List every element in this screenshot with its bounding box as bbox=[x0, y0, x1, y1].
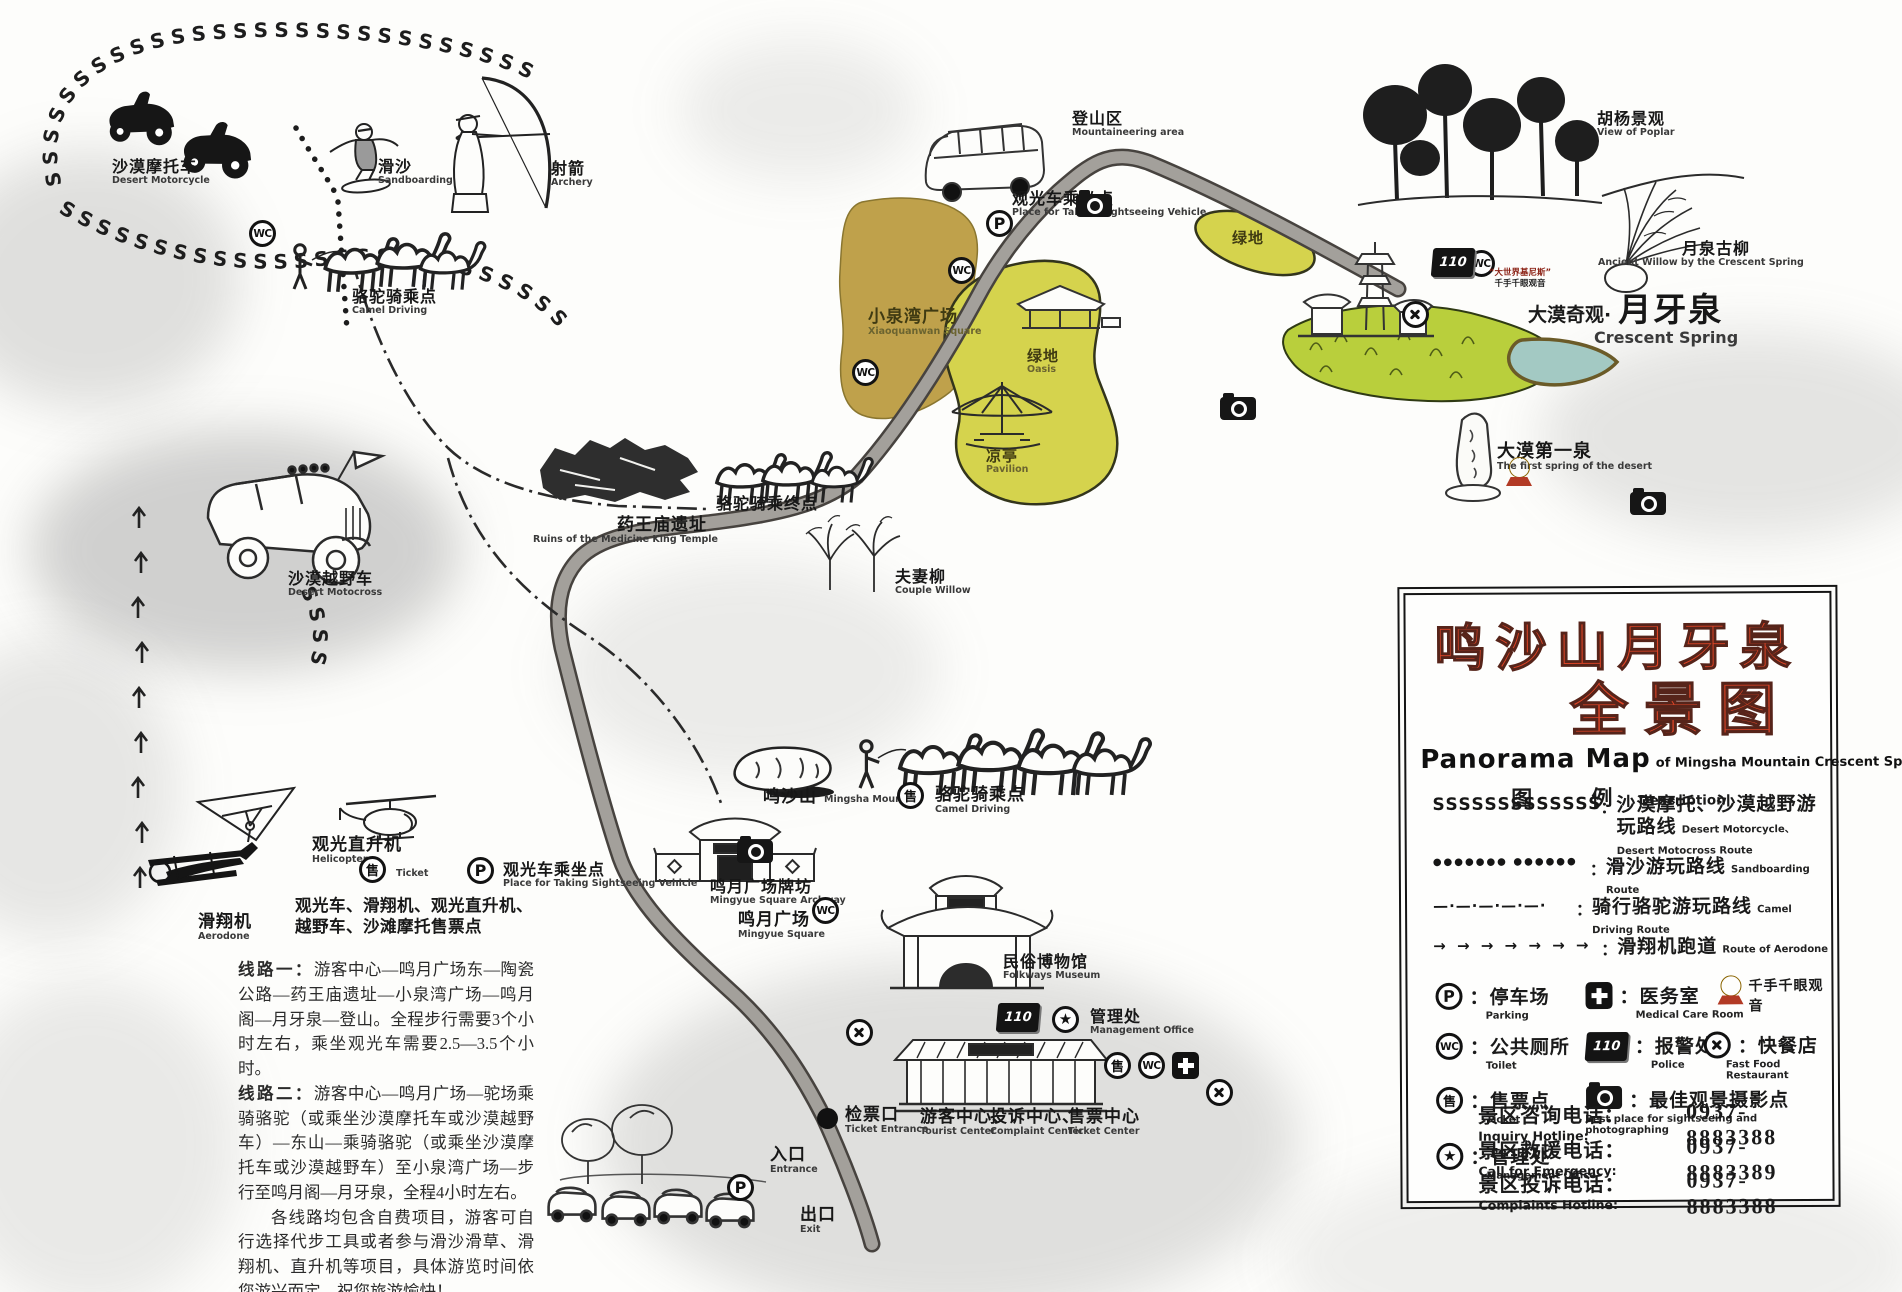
medical-icon bbox=[1585, 982, 1612, 1009]
poi-desert-motocross: 沙漠越野车Desert Motocross bbox=[288, 570, 382, 599]
wc-icon: WC bbox=[852, 359, 879, 386]
ancient-willow bbox=[1605, 182, 1706, 292]
camera-icon bbox=[737, 840, 773, 863]
fast-food-icon bbox=[1402, 301, 1429, 328]
guanyin-caption: “大世界基尼斯”千手千眼观音 bbox=[1478, 268, 1562, 289]
camera-icon bbox=[1630, 492, 1666, 515]
poi-folkways-museum: 民俗博物馆Folkways Museum bbox=[1003, 953, 1100, 982]
poi-sightseeing-vehicle-stop-mid: 观光车乘坐点Place for Taking Sightseeing Vehic… bbox=[503, 861, 697, 890]
poi-camel-driving-yard: 骆驼骑乘点Camel Driving bbox=[935, 786, 1025, 816]
poi-pavilion: 凉亭Pavilion bbox=[986, 448, 1028, 475]
route-tips-text: 各线路均包含自费项目，游客可自行选择代步工具或者参与滑沙滑草、滑翔机、直升机等项… bbox=[238, 1206, 534, 1292]
hang-glider-sketch bbox=[198, 788, 294, 842]
hotline-row-3: 景区投诉电话： 0937-8883388 Complaints Hotline: bbox=[1478, 1168, 1625, 1213]
legend-panel: 鸣沙山月牙泉 全景图 Panorama Map of Mingsha Mount… bbox=[1403, 591, 1834, 1203]
medicine-temple-rocks bbox=[540, 438, 698, 502]
parking-trees-sketch bbox=[562, 1105, 672, 1184]
wc-icon: WC bbox=[1138, 1052, 1165, 1079]
panel-title-zh2: 全景图 bbox=[1406, 679, 1792, 741]
management-star-icon: ★ bbox=[1436, 1143, 1463, 1170]
route-notes: 线路一：游客中心—鸣月广场东—陶瓷公路—药王庙遗址—小泉湾广场—鸣月阁—月牙泉—… bbox=[238, 958, 534, 1292]
poi-helicopter: 观光直升机Helicopter bbox=[312, 836, 402, 866]
parking-icon: P bbox=[727, 1174, 754, 1201]
poi-desert-motorcycle: 沙漠摩托车Desert Motorcycle bbox=[112, 158, 210, 187]
ticket-icon: 售 bbox=[897, 782, 924, 809]
poi-sandboarding: 滑沙Sandboarding bbox=[378, 158, 453, 187]
jeep-sketch bbox=[208, 452, 382, 583]
panel-title-zh: 鸣沙山月牙泉 bbox=[1405, 605, 1829, 681]
svg-text:SSSSSSSSSSSSSSSSSSSSSSSSSS: SSSSSSSSSSSSSSSSSSSSSSSSSS bbox=[55, 196, 577, 337]
poi-mingyue-square: 鸣月广场Mingyue Square bbox=[738, 911, 825, 941]
poi-exit: 出口Exit bbox=[800, 1206, 836, 1236]
aerodone-runway-arrows bbox=[132, 508, 148, 888]
wc-icon: WC bbox=[948, 257, 975, 284]
poi-mountaineering-area: 登山区Mountaineering area bbox=[1072, 110, 1184, 139]
poi-aerodone: 滑翔机Aerodone bbox=[198, 913, 252, 943]
ticket-icon: 售 bbox=[359, 856, 386, 883]
ticket-office-note-line2: 越野车、沙滩摩托售票点 bbox=[295, 913, 482, 937]
ticket-entrance-dot bbox=[817, 1108, 838, 1129]
route-2-text: 线路二：游客中心—鸣月广场—驼场乘骑骆驼（或乘坐沙漠摩托车或沙漠越野车）—东山—… bbox=[238, 1082, 534, 1206]
police-110-icon: 110 bbox=[1431, 248, 1476, 277]
route-1-text: 线路一：游客中心—鸣月广场东—陶瓷公路—药王庙遗址—小泉湾广场—鸣月阁—月牙泉—… bbox=[238, 958, 534, 1082]
sandboarding-route bbox=[296, 128, 347, 330]
camera-icon bbox=[1076, 194, 1112, 217]
poi-archery: 射箭Archery bbox=[551, 160, 593, 189]
ticket-icon: 售 bbox=[1436, 1087, 1463, 1114]
legend-fastfood: ：快餐店 Fast Food Restaurant bbox=[1704, 1031, 1832, 1082]
poi-entrance: 入口Entrance bbox=[770, 1146, 818, 1176]
poi-couple-willow: 夫妻柳Couple Willow bbox=[895, 568, 971, 597]
poplar-grove bbox=[1358, 64, 1744, 205]
legend-route-camel: —·—·—·—·—·： 骑行骆驼游玩路线 Camel Driving Route bbox=[1433, 895, 1831, 938]
parking-icon: P bbox=[467, 857, 494, 884]
management-star-icon: ★ bbox=[1052, 1006, 1079, 1033]
panorama-map-poster: { "map": { "pois": [ {"zh":"沙漠摩托车","en":… bbox=[0, 0, 1902, 1292]
police-110-icon: 110 bbox=[996, 1003, 1041, 1032]
guanyin-icon bbox=[1719, 975, 1741, 1005]
fast-food-icon bbox=[846, 1019, 873, 1046]
panel-title-en: Panorama Map of Mingsha Mountain Crescen… bbox=[1420, 743, 1830, 775]
poi-camel-driving-start: 骆驼骑乘点Camel Driving bbox=[352, 288, 437, 317]
poi-management-office: 管理处Management Office bbox=[1090, 1008, 1194, 1037]
police-110-icon: 110 bbox=[1585, 1032, 1629, 1061]
wc-icon: WC bbox=[1436, 1033, 1463, 1060]
legend-guanyin: 千手千眼观音 bbox=[1719, 975, 1831, 1016]
camera-icon bbox=[1220, 397, 1256, 420]
guanyin-icon bbox=[1508, 457, 1530, 487]
ticket-icon: 售 bbox=[1104, 1052, 1131, 1079]
poi-xiaoquanwan-square: 小泉湾广场Xiaoquanwan Square bbox=[868, 308, 981, 338]
couple-willow bbox=[806, 516, 900, 592]
fast-food-icon bbox=[1206, 1079, 1233, 1106]
poi-camel-terminus: 骆驼骑乘终点 bbox=[716, 495, 818, 513]
parking-icon: P bbox=[1435, 983, 1462, 1010]
legend-parking: P ：停车场 Parking bbox=[1435, 982, 1549, 1022]
legend-route-motorcycle: SSSSSSSSSSSSS： 沙漠摩托、沙漠越野游玩路线 Desert Moto… bbox=[1432, 793, 1830, 859]
legend-route-aerodone: → → → → → → →： 滑翔机跑道 Route of Aerodone bbox=[1433, 935, 1828, 961]
poi-ticket-entrance: 检票口Ticket Entrance bbox=[845, 1106, 928, 1136]
parking-icon: P bbox=[986, 210, 1013, 237]
poi-ticket-center: 售票中心Ticket Center bbox=[1068, 1108, 1140, 1138]
fast-food-icon bbox=[1704, 1031, 1731, 1058]
poi-ancient-willow: 月泉古柳Ancient Willow by the Crescent Sprin… bbox=[1598, 240, 1804, 269]
poi-view-of-poplar: 胡杨景观View of Poplar bbox=[1597, 110, 1675, 139]
poi-crescent-spring: 大漠奇观·月牙泉 Crescent Spring bbox=[1528, 292, 1738, 347]
biplane-sketch bbox=[148, 842, 258, 886]
poi-oasis: 绿地Oasis bbox=[1027, 348, 1059, 375]
medical-icon bbox=[1172, 1052, 1199, 1079]
ticket-icon-label: Ticket bbox=[396, 868, 428, 879]
wc-icon: WC bbox=[812, 897, 839, 924]
visitor-center-sketch bbox=[895, 1040, 1107, 1111]
helicopter-sketch bbox=[340, 796, 436, 840]
legend-route-sandboarding: ●●●●●●● ●●●●●●： 滑沙游玩路线 Sandboarding Rout… bbox=[1433, 855, 1831, 898]
stone-monument bbox=[1446, 414, 1500, 501]
poi-green-area-small: 绿地 bbox=[1232, 230, 1264, 247]
poi-medicine-king-temple: 药王庙遗址Ruins of the Medicine King Temple bbox=[533, 516, 718, 546]
wc-icon: WC bbox=[249, 220, 276, 247]
legend-police: 110 ：报警处 Police bbox=[1586, 1032, 1715, 1072]
legend-toilet: WC ：公共厕所 Toilet bbox=[1436, 1032, 1570, 1072]
archer-sketch bbox=[452, 78, 550, 212]
